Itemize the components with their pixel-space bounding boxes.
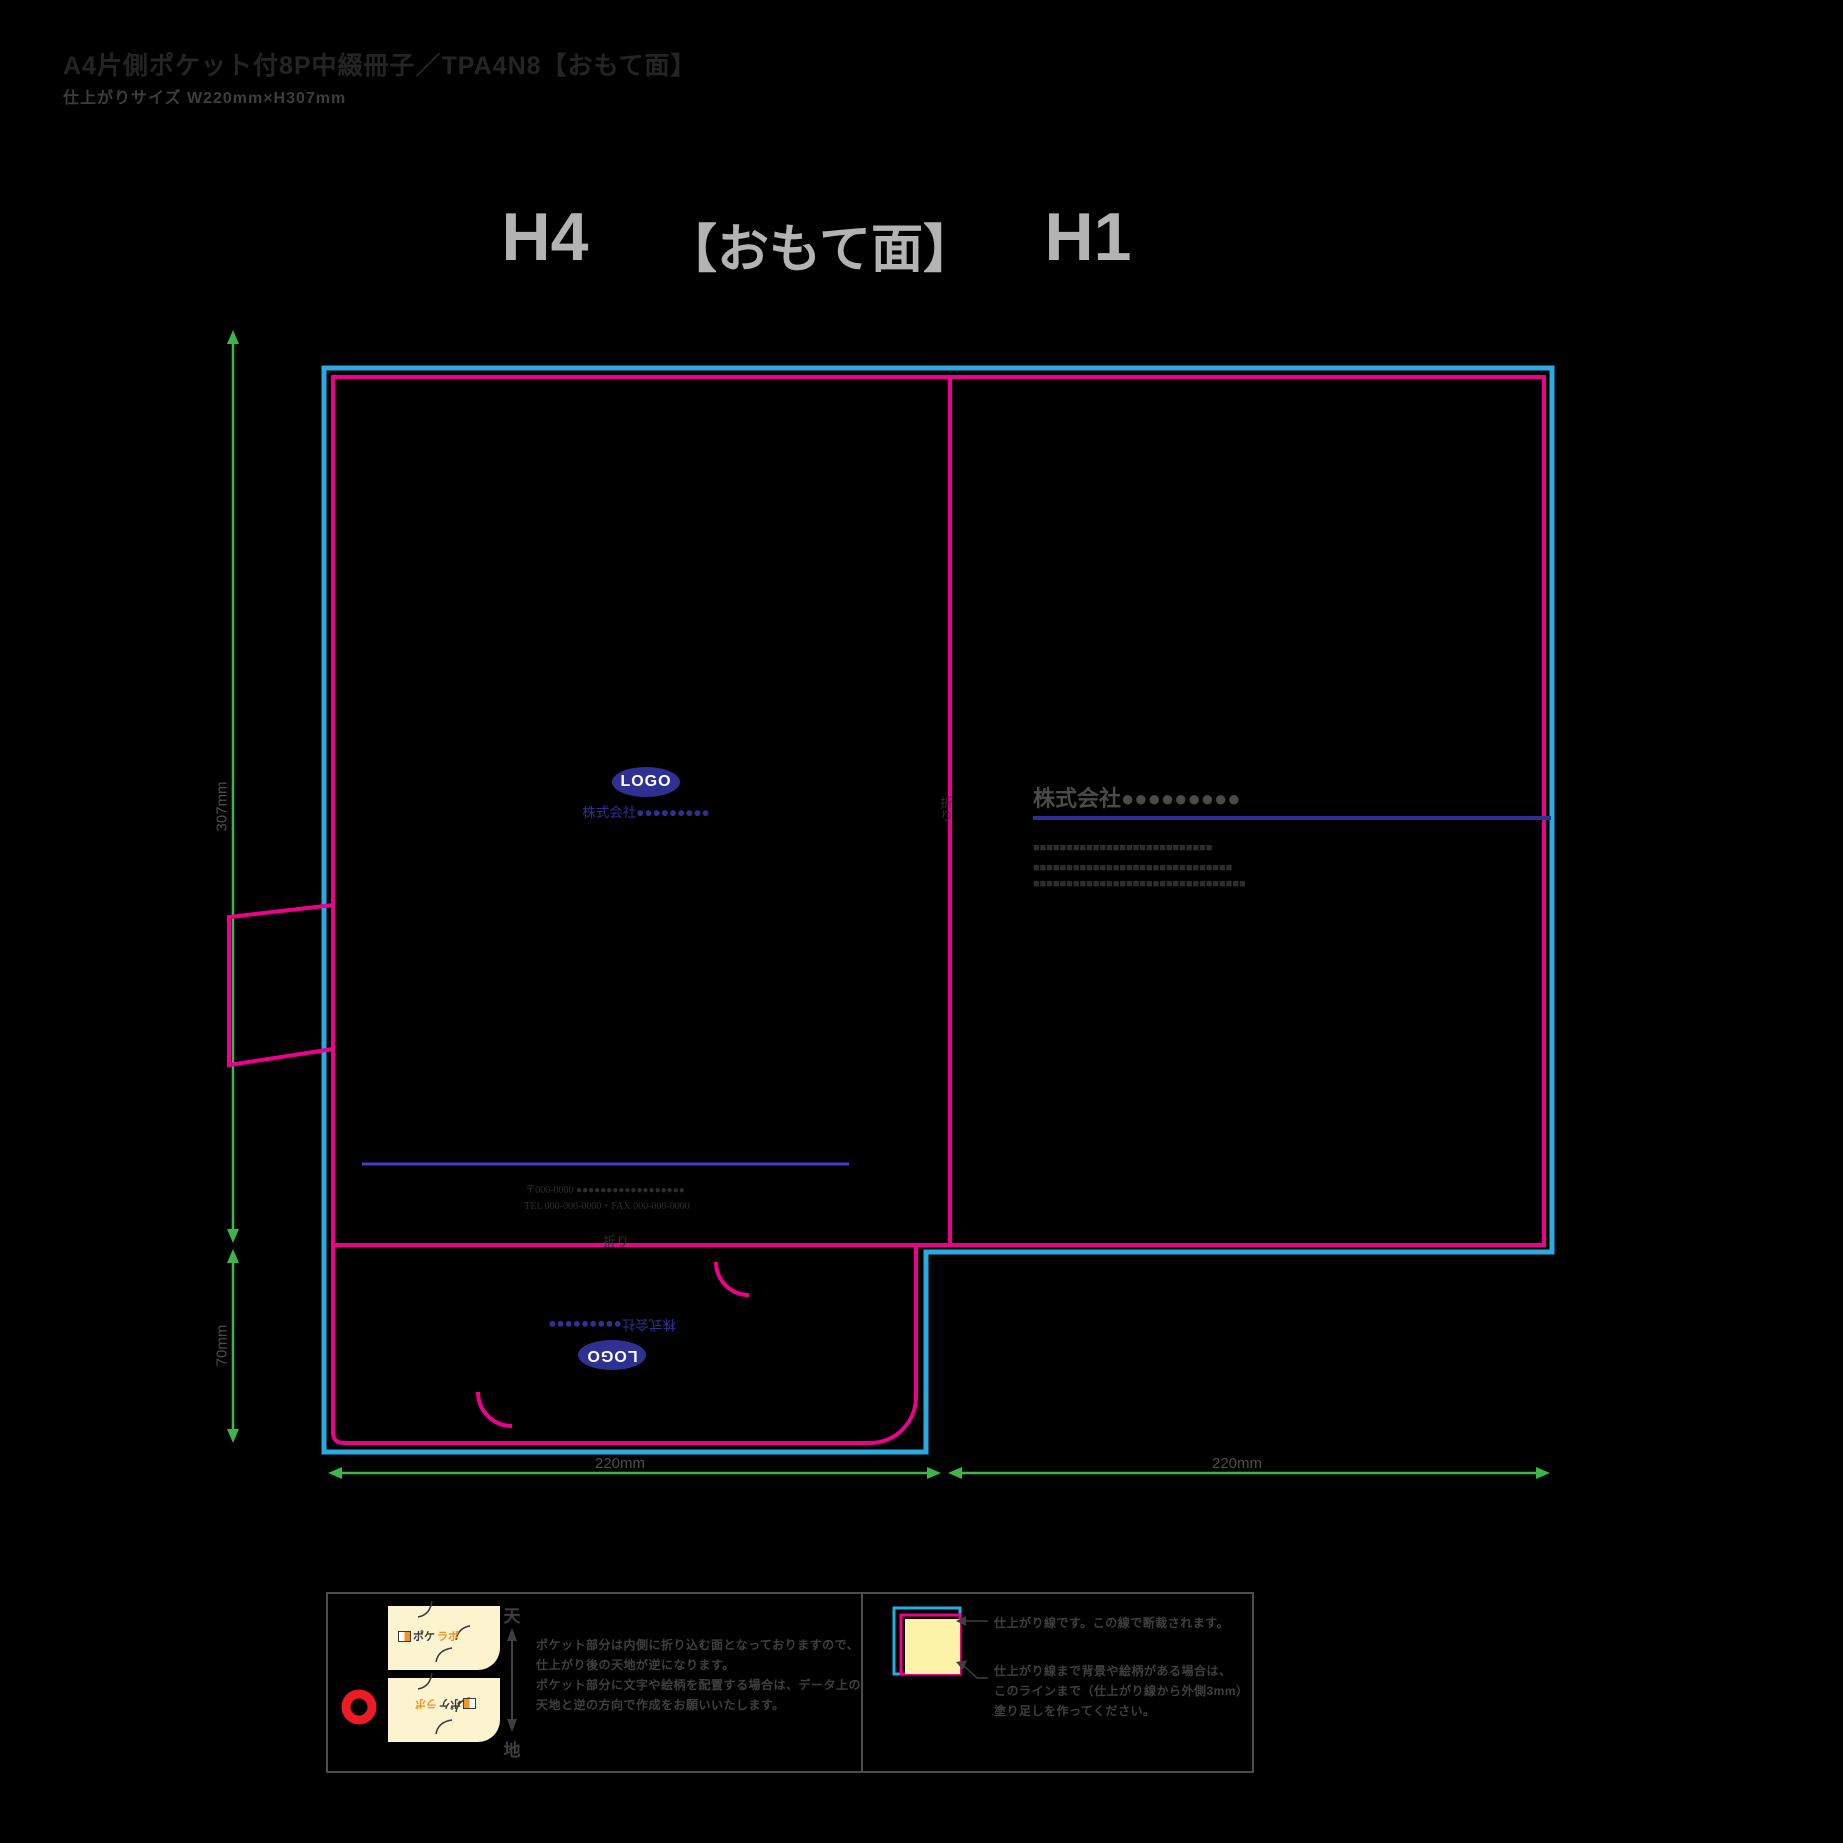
trim-note-line: 仕上がり線まで背景や絵柄がある場合は、 <box>994 1662 1232 1679</box>
header-side: 【おもて面】 <box>665 207 975 282</box>
bleed-outline <box>324 368 1552 1452</box>
dim-arrow-down <box>227 1229 239 1243</box>
h4-tel-fax: TEL 000-000-0000・FAX 000-000-0000 <box>524 1197 690 1212</box>
pocket-note-line: ポケット部分に文字や絵柄を配置する場合は、データ上の <box>536 1676 861 1693</box>
pocket-logo-block: LOGO 株式会社●●●●●●●●● <box>512 1308 712 1372</box>
thumb-logo-text: ポケ <box>439 1696 461 1712</box>
book-icon <box>463 1699 476 1710</box>
pocket-thumbnails <box>346 1601 517 1742</box>
page-title: A4片側ポケット付8P中綴冊子／TPA4N8【おもて面】 <box>63 46 697 82</box>
h1-body-line: ■■■■■■■■■■■■■■■■■■■■■■■■■■■■■■■■ <box>1033 878 1246 890</box>
pocket-fold-label: 折り <box>603 1231 629 1250</box>
trim-note-line: このラインまで（仕上がり線から外側3mm） <box>994 1682 1249 1699</box>
thumb-logo-accent: ラボ <box>415 1696 437 1712</box>
thumb-cut-arc-top <box>716 1262 749 1295</box>
top-bottom-arrow <box>507 1628 517 1732</box>
dim-arrow-up <box>227 330 239 344</box>
dim-arrow-left-2 <box>948 1467 962 1479</box>
dim-arrow-left <box>328 1467 342 1479</box>
thumb-cut-arc-bottom <box>478 1392 512 1426</box>
h4-company-name: 株式会社●●●●●●●●● <box>546 801 746 821</box>
h1-company-name: 株式会社●●●●●●●●● <box>1033 781 1241 813</box>
dim-back-width: 220mm <box>570 1455 670 1472</box>
thumb-logo-flipped-wrap: ポケ ラボ <box>396 1696 476 1714</box>
dimension-lines <box>227 330 1550 1479</box>
trim-mini-diagram <box>894 1608 988 1678</box>
pocket-note-line: ポケット部分は内側に折り込む面となっておりますので、 <box>536 1636 859 1653</box>
dim-arrow-right <box>927 1467 941 1479</box>
h1-body-line: ■■■■■■■■■■■■■■■■■■■■■■■■■■■■■■ <box>1033 862 1232 874</box>
header-h1: H1 <box>1045 198 1132 276</box>
trim-note-line: 塗り足しを作ってください。 <box>994 1702 1156 1719</box>
pocket-logo-oval: LOGO <box>578 1340 646 1370</box>
pocket-note-line: 仕上がり後の天地が逆になります。 <box>536 1656 735 1673</box>
glue-tab-outline <box>229 905 333 1065</box>
page-subtitle: 仕上がりサイズ W220mm×H307mm <box>63 84 346 108</box>
h1-body-line: ■■■■■■■■■■■■■■■■■■■■■■■■■■■ <box>1033 842 1212 854</box>
thumb-logo-upright: ポケ ラボ <box>398 1628 459 1644</box>
label-bottom: 地 <box>504 1736 521 1761</box>
thumb-logo-accent: ラボ <box>437 1628 459 1644</box>
h4-postal-address: 〒000-0000 ●●●●●●●●●●●●●●●●●● <box>525 1181 685 1196</box>
pocket-company-name: 株式会社●●●●●●●●● <box>512 1316 712 1336</box>
pocket-note-line: 天地と逆の方向で作成をお願いいたします。 <box>536 1696 785 1713</box>
dim-arrow-up-2 <box>227 1249 239 1263</box>
header-h4: H4 <box>502 198 589 276</box>
h4-logo-block: LOGO 株式会社●●●●●●●●● <box>546 767 746 827</box>
dim-pocket-height: 70mm <box>214 1304 231 1388</box>
dim-page-height: 307mm <box>214 765 231 849</box>
trim-note-line: 仕上がり線です。この線で断裁されます。 <box>994 1614 1229 1631</box>
dim-arrow-right-2 <box>1536 1467 1550 1479</box>
h4-logo-oval: LOGO <box>612 767 680 797</box>
label-top: 天 <box>504 1602 521 1627</box>
thumb-logo-text: ポケ <box>413 1628 435 1644</box>
dim-arrow-down-2 <box>227 1429 239 1443</box>
mini-artwork-rect <box>905 1619 960 1674</box>
book-icon <box>398 1631 411 1642</box>
thumb-logo-flipped: ポケ ラボ <box>415 1696 476 1712</box>
alert-ring-icon <box>346 1694 372 1720</box>
center-fold-label: 折り <box>936 796 955 822</box>
template-canvas: A4片側ポケット付8P中綴冊子／TPA4N8【おもて面】 仕上がりサイズ W22… <box>0 0 1843 1843</box>
dim-front-width: 220mm <box>1187 1455 1287 1472</box>
